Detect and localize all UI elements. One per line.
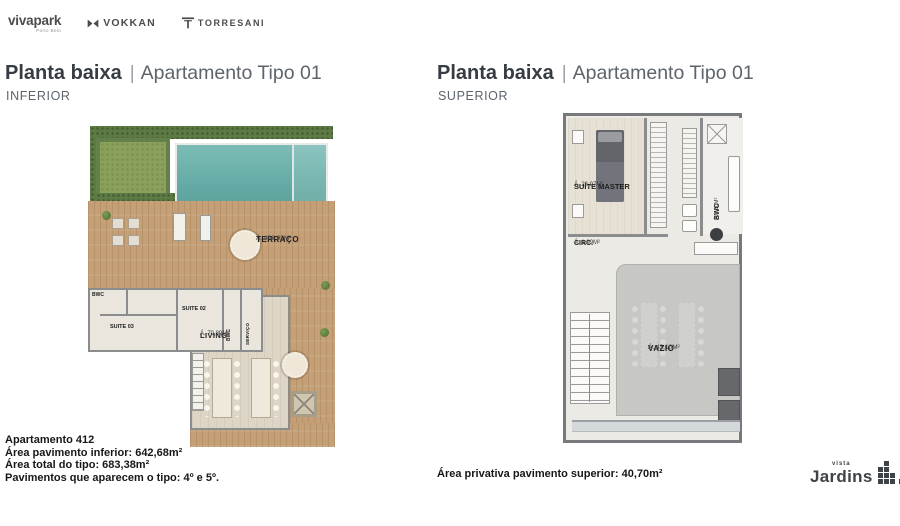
stairs: [570, 312, 610, 404]
desk: [694, 242, 738, 255]
dining-table-2: [251, 358, 271, 418]
bwc-area: Á.5,30M²: [714, 198, 721, 220]
wall: [222, 290, 224, 350]
lounge-chair: [112, 218, 124, 229]
right-title-separator: |: [562, 63, 567, 84]
left-title-light: Apartamento Tipo 01: [141, 62, 322, 84]
pavimentos: Pavimentos que aparecem o tipo: 4º e 5º.: [5, 472, 219, 485]
right-title-strong: Planta baixa: [437, 62, 554, 84]
vivapark-wordmark: vivapark: [8, 14, 61, 27]
apartment-number: Apartamento 412: [5, 434, 219, 447]
nightstand: [572, 130, 584, 144]
stairs-rail: [589, 314, 590, 402]
right-plan-subtitle: SUPERIOR: [438, 89, 508, 103]
vivapark-logo: vivapark Porto Belo: [8, 14, 61, 33]
torresani-logo: TORRESANI: [182, 17, 265, 29]
vista-jardins-wordmark: vista Jardins: [810, 461, 873, 485]
suite02-name: SUITE 02: [182, 306, 206, 313]
lounge-chair: [128, 218, 140, 229]
left-title-separator: |: [130, 63, 135, 84]
terraco-area: Á. 493,93M²: [256, 235, 291, 243]
dining-chairs-1: [203, 359, 211, 417]
wall: [176, 290, 178, 350]
vokkan-wordmark: VOKKAN: [103, 17, 156, 29]
servico-name: SERVIÇO: [245, 323, 251, 345]
toilet: [682, 204, 697, 217]
balcony-railing: [572, 420, 740, 432]
dining-chairs-2: [233, 359, 241, 417]
ghost-chairs: [631, 304, 639, 366]
lawn: [96, 138, 170, 200]
wall: [644, 118, 647, 236]
wall: [126, 288, 128, 316]
vokkan-bowtie-icon: [87, 19, 99, 28]
lounge-chair: [112, 235, 124, 246]
apartment-info: Apartamento 412 Área pavimento inferior:…: [5, 434, 219, 484]
left-title-strong: Planta baixa: [5, 62, 122, 84]
closet: [650, 122, 667, 228]
terrace-deck-upper: [88, 201, 335, 291]
right-title-light: Apartamento Tipo 01: [573, 62, 754, 84]
wall: [100, 314, 176, 316]
suite03-name: SUITE 03: [110, 324, 134, 331]
wall: [240, 290, 242, 350]
vista-jardins-logo: vista Jardins: [810, 461, 900, 485]
bar-counter: [173, 213, 186, 241]
plant-icon: [102, 211, 111, 220]
shower: [707, 124, 727, 144]
right-plan-title: Planta baixa|Apartamento Tipo 01: [437, 62, 754, 85]
deck-round-table: [282, 352, 308, 378]
jardins-blocks-icon: [878, 461, 900, 485]
desk-chair: [710, 228, 723, 241]
plant-icon: [321, 281, 330, 290]
torresani-t-icon: [182, 17, 194, 29]
plant-icon: [320, 328, 329, 337]
dining-table-1: [212, 358, 232, 418]
wall: [568, 234, 668, 237]
vokkan-logo: VOKKAN: [87, 17, 156, 29]
area-total: Área total do tipo: 683,38m²: [5, 459, 219, 472]
floor-plan-inferior: TERRAÇO Á. 493,93M² BWC SUITE 03 SUITE 0…: [88, 123, 335, 447]
bar-counter: [200, 215, 211, 241]
brochure-page: vivapark Porto Belo VOKKAN TORRESANI Pla…: [0, 0, 900, 526]
lounge-chair: [128, 235, 140, 246]
sink: [682, 220, 697, 232]
ghost-chairs: [697, 304, 705, 366]
ghost-table: [678, 302, 696, 368]
left-plan-title: Planta baixa|Apartamento Tipo 01: [5, 62, 322, 85]
bwc1-name: BWC: [92, 292, 104, 298]
circ-area: Á. 1,99M²: [574, 240, 600, 248]
cabinet: [718, 368, 740, 396]
pool: [175, 143, 328, 205]
spa-square: [291, 391, 317, 417]
pool-lane-divider: [292, 145, 326, 203]
bed-pillow: [598, 132, 622, 142]
nightstand: [572, 204, 584, 218]
brand-bar: vivapark Porto Belo VOKKAN TORRESANI: [8, 10, 265, 36]
closet: [682, 128, 697, 198]
vivapark-sublabel: Porto Belo: [36, 28, 61, 33]
floor-plan-superior: SUÍTE MASTER Á. 26,97M² BWC Á.5,30M² CIR…: [563, 113, 742, 443]
living-area: Á. 70,89M²: [200, 331, 229, 339]
left-plan-subtitle: INFERIOR: [6, 89, 71, 103]
ghost-table: [640, 302, 658, 368]
area-superior: Área privativa pavimento superior: 40,70…: [437, 468, 663, 480]
bathroom-counter: [728, 156, 740, 212]
jardins-text: Jardins: [810, 468, 873, 485]
dining-chairs-3: [272, 359, 280, 417]
area-inferior: Área pavimento inferior: 642,68m²: [5, 447, 219, 460]
ghost-chairs: [659, 304, 667, 366]
vazio-area: Á. 43,10M²: [648, 344, 680, 352]
suite-master-area: Á. 26,97M²: [574, 182, 603, 190]
torresani-wordmark: TORRESANI: [198, 18, 265, 28]
